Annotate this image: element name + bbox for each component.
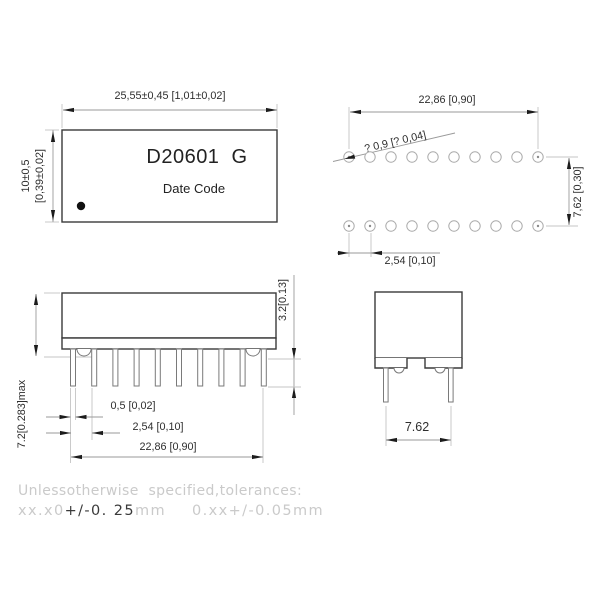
pin-hole xyxy=(491,152,501,162)
pin-hole xyxy=(512,221,522,231)
dim-package-height-mm: 10±0,5 xyxy=(20,160,32,193)
dim-row-spacing: 7,62 [0,30] xyxy=(572,166,584,217)
side-seating-strip xyxy=(62,338,276,349)
side-pin xyxy=(240,349,245,386)
pin-hole xyxy=(386,221,396,231)
side-pin xyxy=(113,349,118,386)
end-body xyxy=(375,292,462,358)
dim-hole-span: 22,86 [0,90] xyxy=(418,94,475,106)
package-body xyxy=(62,130,277,222)
side-pin xyxy=(261,349,266,386)
engineering-drawing-page: D20601 G Date Code 25,55±0,45 [1,01±0,02… xyxy=(0,0,600,600)
dim-hole-pitch: 2,54 [0,10] xyxy=(384,255,435,267)
hole-center-dot xyxy=(537,156,539,158)
tolerance-note-line1: Unlessotherwise specified,tolerances: xyxy=(18,483,302,499)
part-number-label: D20601 G xyxy=(146,146,247,168)
end-pin-right xyxy=(449,368,454,402)
pin-hole xyxy=(449,152,459,162)
pin-hole xyxy=(470,152,480,162)
pin-hole xyxy=(428,221,438,231)
dim-package-width: 25,55±0,45 [1,01±0,02] xyxy=(115,90,226,102)
dim-end-pin-spacing: 7.62 xyxy=(405,420,429,434)
pin1-marker-dot xyxy=(77,202,85,210)
dim-package-height-in: [0,39±0,02] xyxy=(34,149,46,203)
pin-hole xyxy=(449,221,459,231)
side-pin xyxy=(198,349,203,386)
side-pin xyxy=(134,349,139,386)
tolerance-second: 0.xx+/-0.05mm xyxy=(192,503,324,519)
pin-hole xyxy=(386,152,396,162)
side-pin xyxy=(92,349,97,386)
pin-hole xyxy=(491,221,501,231)
side-pin xyxy=(155,349,160,386)
pin-hole xyxy=(428,152,438,162)
date-code-label: Date Code xyxy=(163,181,225,196)
tolerance-highlight: +/-0. 25 xyxy=(65,503,135,519)
dim-max-height: 7.2[0.283]max xyxy=(16,379,28,448)
dim-pin-width: 0,5 [0,02] xyxy=(110,400,155,412)
pin-hole xyxy=(470,221,480,231)
tolerance-unit: mm xyxy=(135,503,166,519)
dim-pin-pitch: 2,54 [0,10] xyxy=(132,421,183,433)
end-pin-left xyxy=(384,368,389,402)
side-pin xyxy=(219,349,224,386)
pin-hole xyxy=(407,152,417,162)
tolerance-prefix: xx.x0 xyxy=(18,503,65,519)
side-pin xyxy=(177,349,182,386)
dim-standoff: 3.2[0.13] xyxy=(277,279,289,321)
hole-center-dot xyxy=(537,225,539,227)
hole-center-dot xyxy=(369,225,371,227)
side-body xyxy=(62,293,276,338)
dim-pin-span: 22,86 [0,90] xyxy=(139,441,196,453)
side-pin xyxy=(71,349,76,386)
pin-hole xyxy=(407,221,417,231)
pin-hole xyxy=(365,152,375,162)
drawing-canvas: D20601 G Date Code 25,55±0,45 [1,01±0,02… xyxy=(0,0,600,600)
pin-hole xyxy=(512,152,522,162)
hole-center-dot xyxy=(348,225,350,227)
